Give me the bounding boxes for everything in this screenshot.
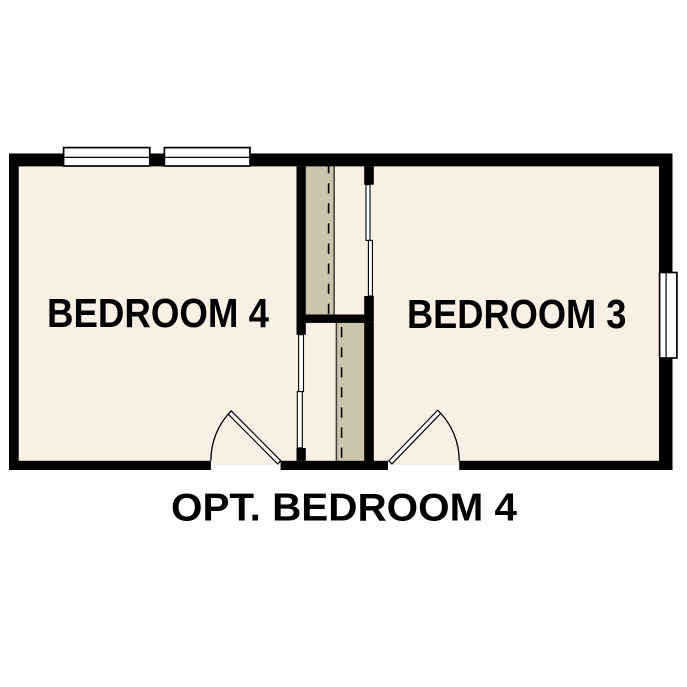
svg-text:BEDROOM 3: BEDROOM 3 [407,291,627,337]
svg-text:OPT. BEDROOM 4: OPT. BEDROOM 4 [171,486,518,529]
svg-text:BEDROOM 4: BEDROOM 4 [47,290,269,336]
